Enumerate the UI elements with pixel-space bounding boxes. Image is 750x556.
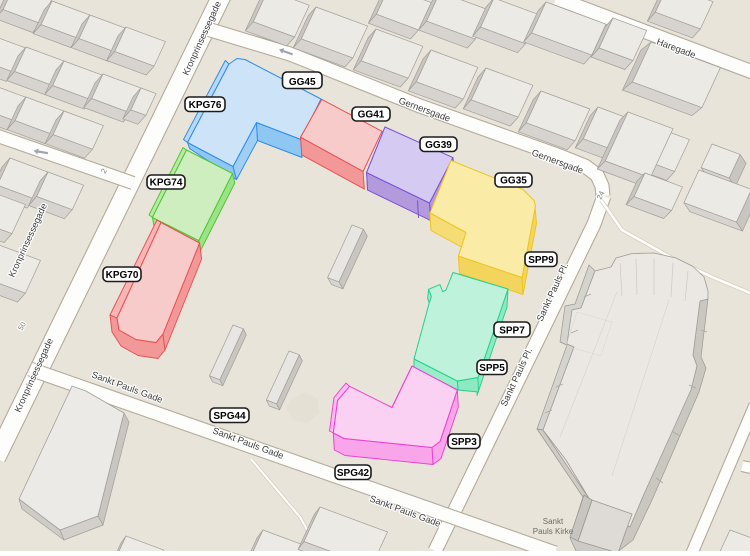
svg-text:KPG70: KPG70: [106, 270, 139, 281]
svg-text:Sankt: Sankt: [543, 517, 564, 526]
svg-text:SPG42: SPG42: [337, 468, 370, 479]
svg-text:KPG76: KPG76: [189, 100, 222, 111]
svg-text:GG41: GG41: [358, 110, 385, 121]
svg-text:GG35: GG35: [500, 176, 527, 187]
svg-text:SPP3: SPP3: [451, 437, 477, 448]
svg-text:SPG44: SPG44: [213, 411, 246, 422]
svg-text:SPP9: SPP9: [528, 255, 554, 266]
svg-text:GG39: GG39: [425, 140, 452, 151]
svg-text:SPP5: SPP5: [479, 363, 505, 374]
svg-text:Pauls Kirke: Pauls Kirke: [533, 527, 574, 536]
svg-text:GG45: GG45: [289, 77, 316, 88]
svg-text:SPP7: SPP7: [499, 326, 525, 337]
svg-text:KPG74: KPG74: [150, 178, 183, 189]
